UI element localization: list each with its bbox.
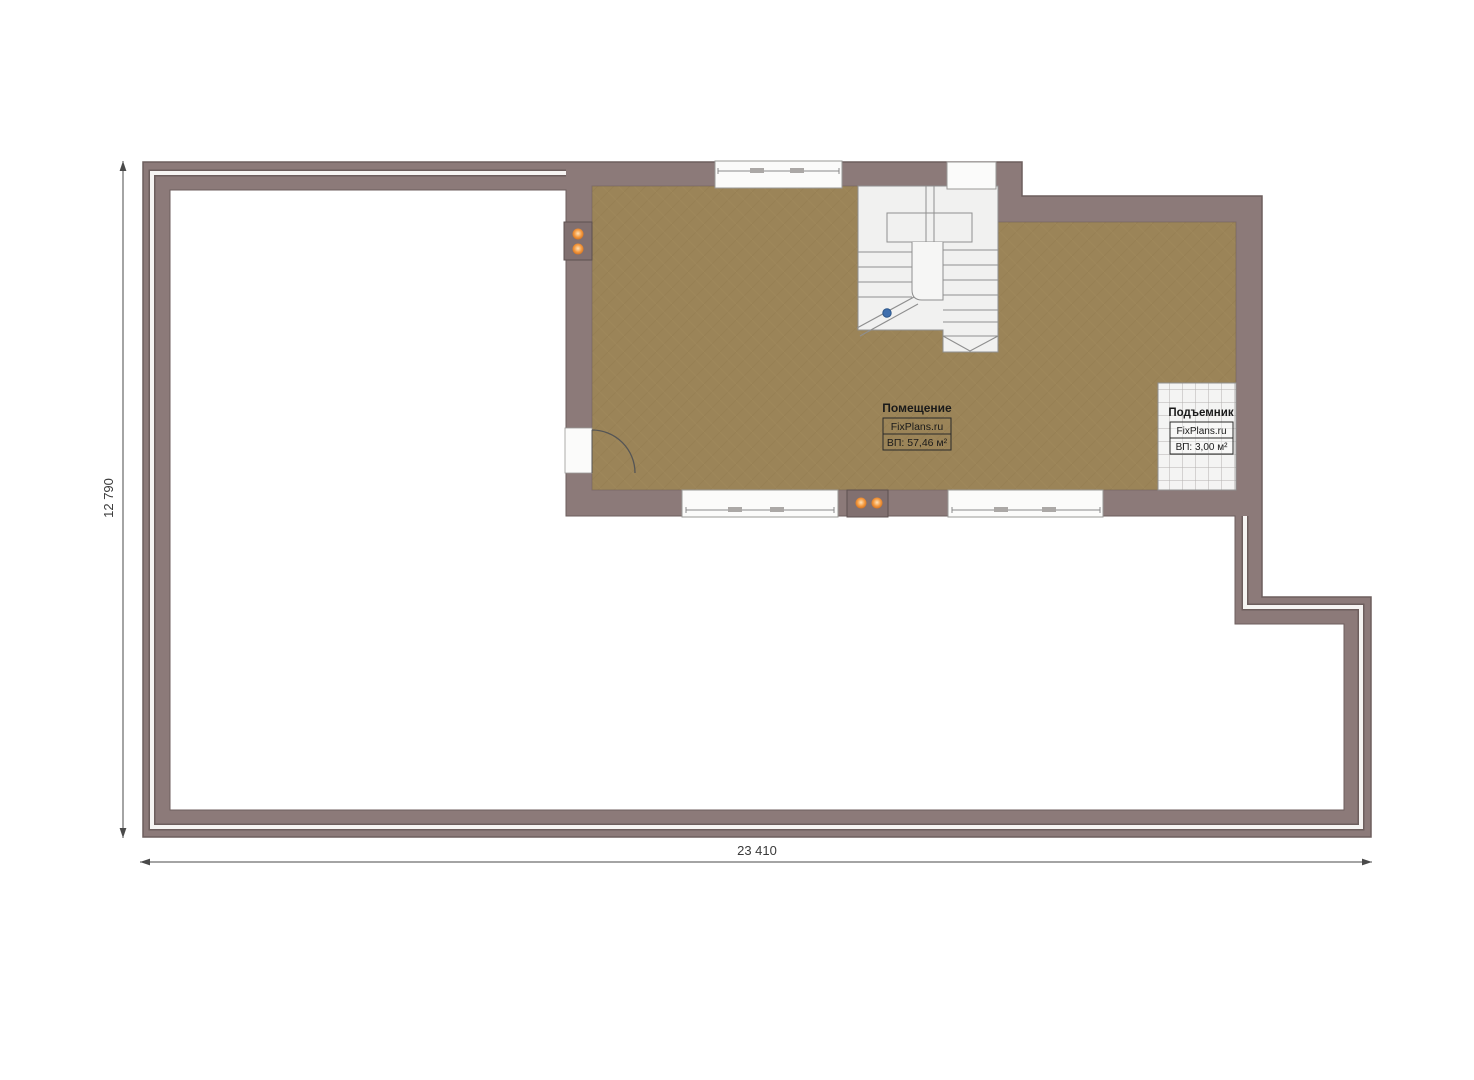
dimension-arrow-icon	[120, 828, 127, 838]
outlet-dot-icon	[573, 244, 584, 255]
dimension-vertical: 12 790	[101, 161, 126, 838]
wall-panel-left	[564, 222, 592, 260]
dimension-value-vertical: 12 790	[101, 478, 116, 518]
window	[947, 162, 996, 189]
lift-title: Подъемник	[1168, 407, 1233, 419]
wall-panel-bottom	[847, 490, 888, 517]
window-mullion	[1042, 507, 1056, 512]
dimension-horizontal: 23 410	[140, 843, 1372, 865]
staircase	[857, 186, 998, 352]
stair-marker-dot	[883, 309, 891, 317]
window-mullion	[994, 507, 1008, 512]
dimension-arrow-icon	[1362, 859, 1372, 866]
door-opening	[565, 428, 592, 473]
lift-brand: FixPlans.ru	[1176, 426, 1226, 437]
floor-plan-canvas: Помещение FixPlans.ru ВП: 57,46 м² Подъе…	[0, 0, 1474, 1080]
lift-area: ВП: 3,00 м²	[1176, 442, 1229, 453]
window	[682, 490, 838, 517]
room-label: Помещение FixPlans.ru ВП: 57,46 м²	[882, 401, 952, 450]
room-brand: FixPlans.ru	[891, 421, 944, 433]
outlet-dot-icon	[573, 229, 584, 240]
window-mullion	[728, 507, 742, 512]
window	[948, 490, 1103, 517]
dimension-arrow-icon	[120, 161, 127, 171]
room-title: Помещение	[882, 401, 952, 415]
stair-void-outline	[912, 242, 943, 300]
window-mullion	[770, 507, 784, 512]
window	[715, 161, 842, 188]
dimension-arrow-icon	[140, 859, 150, 866]
outlet-dot-icon	[872, 498, 883, 509]
lift-label: Подъемник FixPlans.ru ВП: 3,00 м²	[1168, 407, 1233, 454]
outlet-dot-icon	[856, 498, 867, 509]
room-area: ВП: 57,46 м²	[887, 437, 948, 449]
floor-plan-page: Помещение FixPlans.ru ВП: 57,46 м² Подъе…	[0, 0, 1474, 1080]
window-mullion	[750, 168, 764, 173]
window-mullion	[790, 168, 804, 173]
dimension-value-horizontal: 23 410	[737, 843, 777, 858]
